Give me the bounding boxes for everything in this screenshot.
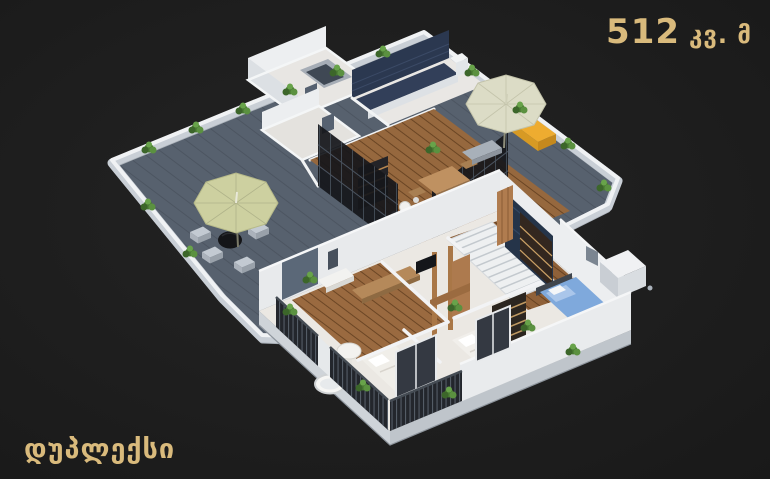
plan-title: დუპლექსი: [24, 434, 175, 465]
area-value: 512: [606, 12, 680, 52]
floor-plan-illustration: [0, 0, 770, 479]
duplex-floorplan-page: 512 კვ. მ დუპლექსი: [0, 0, 770, 479]
area-label: 512 კვ. მ: [606, 12, 752, 52]
area-unit: კვ. მ: [689, 21, 752, 49]
